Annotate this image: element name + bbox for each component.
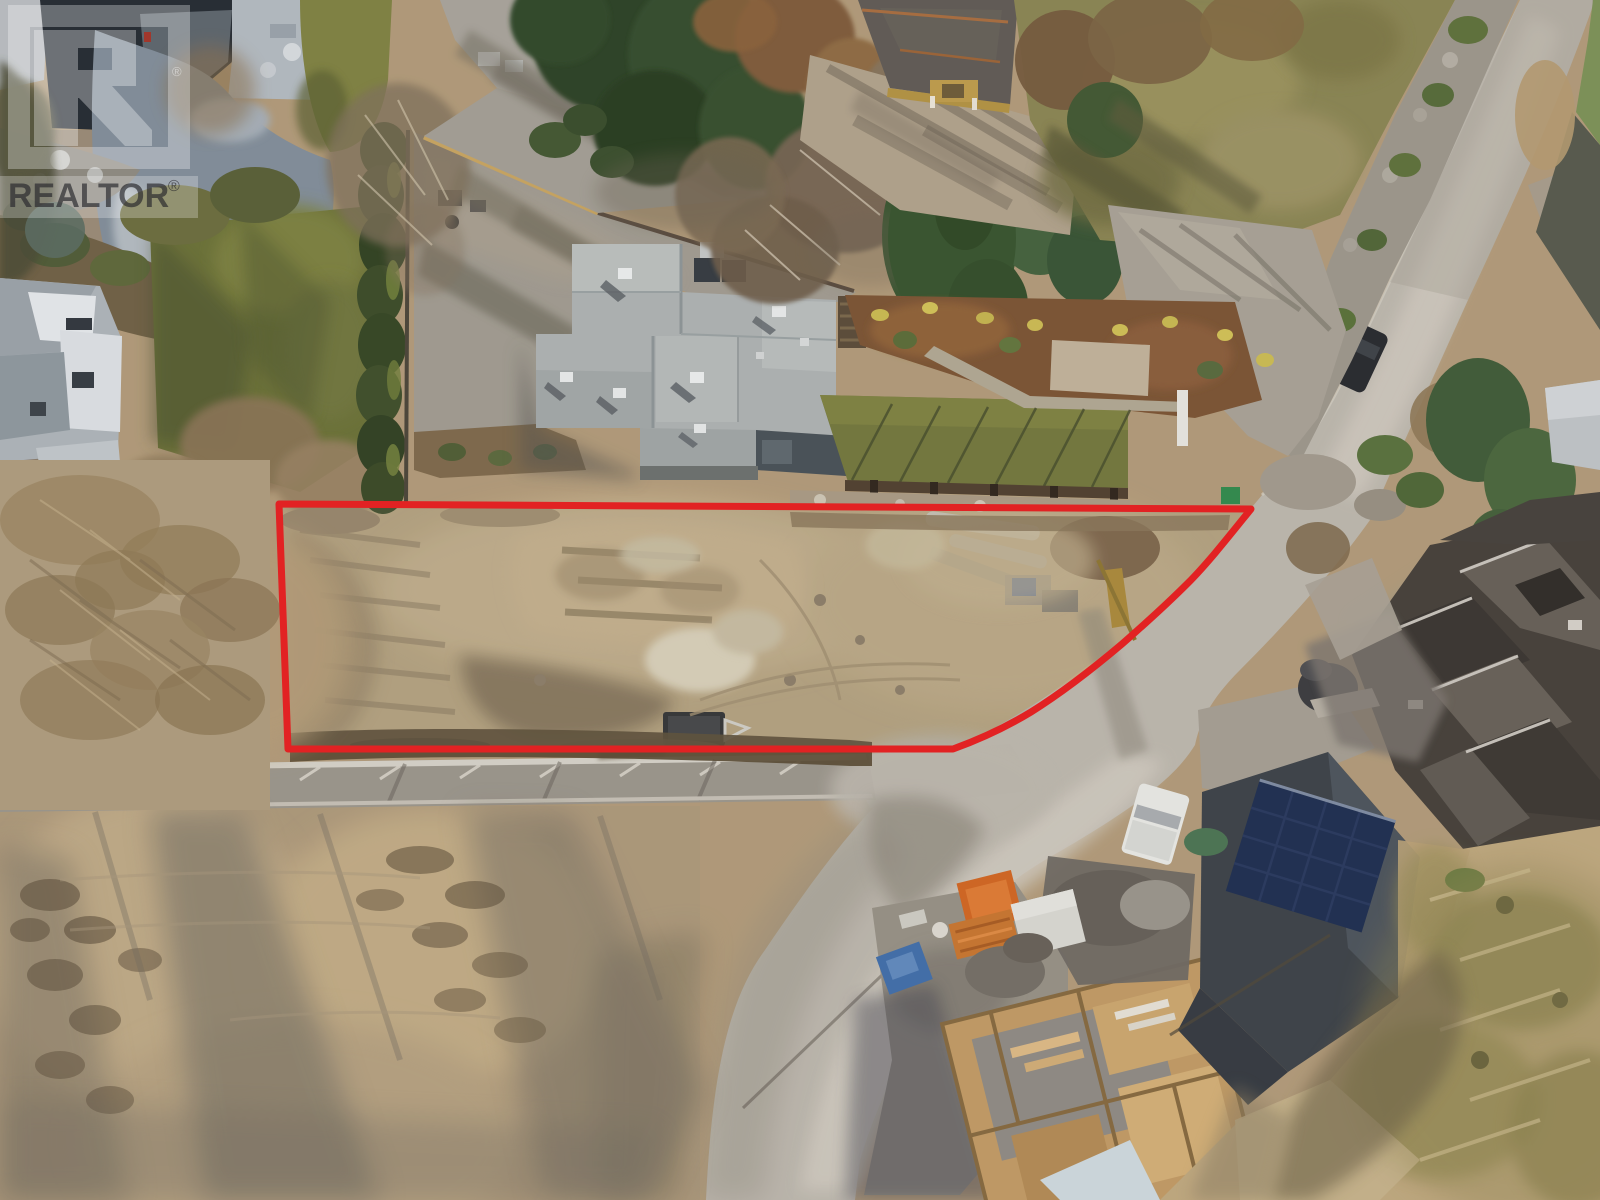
svg-text:®: ®	[172, 64, 182, 79]
svg-text:®: ®	[168, 178, 180, 195]
svg-text:REALTOR: REALTOR	[8, 177, 169, 215]
